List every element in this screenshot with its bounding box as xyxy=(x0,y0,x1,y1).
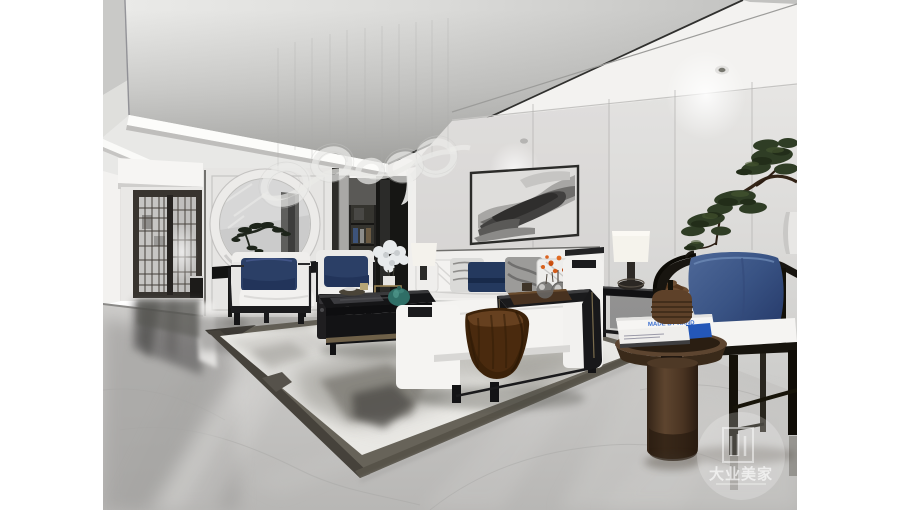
svg-text:大业美家: 大业美家 xyxy=(709,465,773,483)
